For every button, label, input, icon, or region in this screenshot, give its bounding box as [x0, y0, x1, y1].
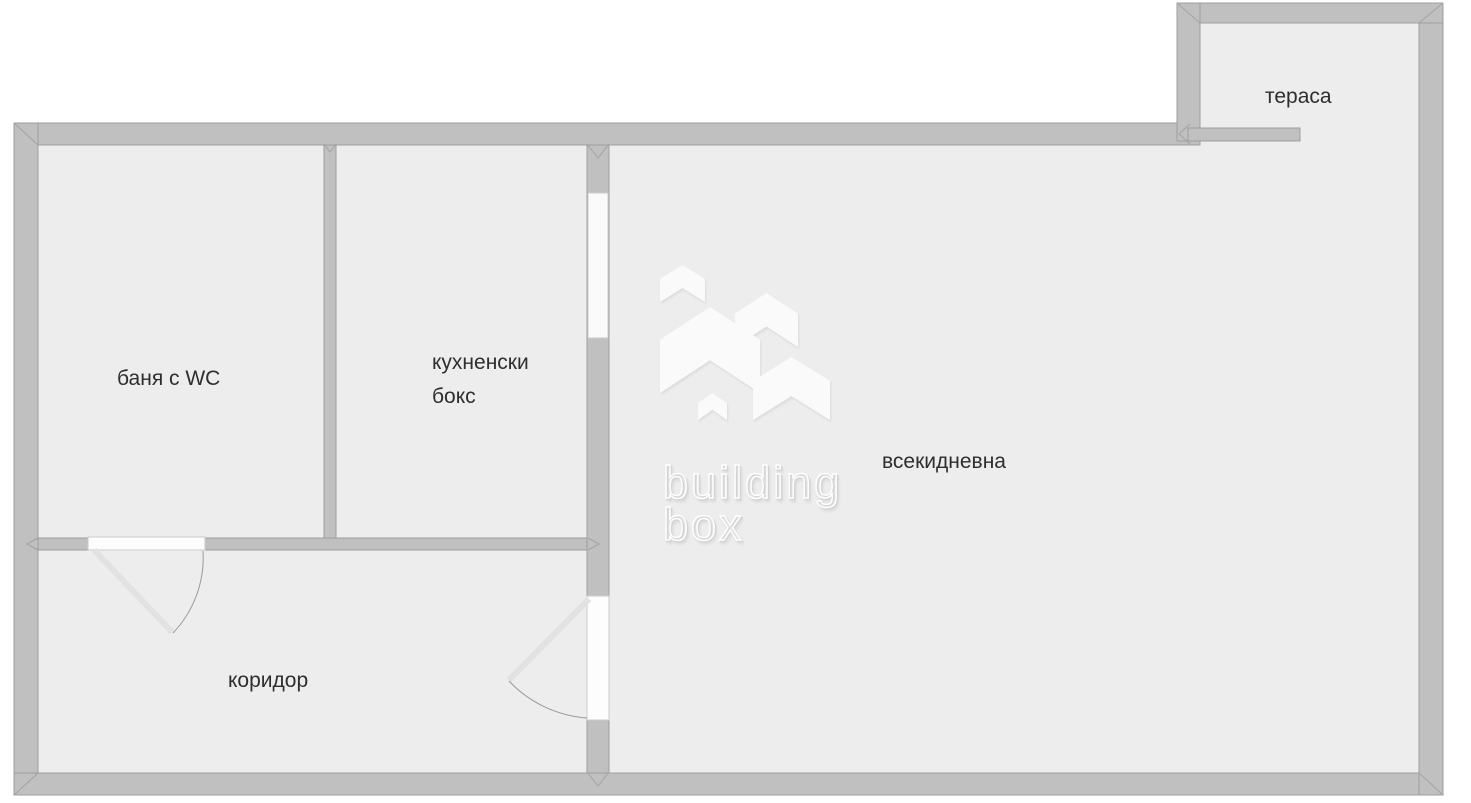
- watermark-brand-line2: box: [663, 499, 745, 550]
- room-label-living-room: всекидневна: [882, 450, 1006, 473]
- wall-left-exterior: [14, 123, 38, 795]
- room-label-bathroom: баня с WC: [117, 367, 220, 390]
- bathroom-door-opening: [88, 537, 205, 550]
- room-label-terrace: тераса: [1265, 85, 1332, 108]
- floorplan-page: building building box box: [0, 0, 1471, 803]
- room-floor-terrace: [1200, 23, 1419, 145]
- kitchen-pass-window: [588, 193, 608, 338]
- living-room-door-opening: [587, 596, 609, 720]
- wall-bathroom-kitchen-divider: [324, 142, 336, 550]
- wall-right-exterior: [1419, 3, 1443, 795]
- wall-terrace-parapet-stub: [1188, 128, 1300, 141]
- room-label-kitchen-line1: кухненски: [432, 351, 529, 374]
- floorplan-canvas: building building box box: [0, 0, 1471, 803]
- wall-terrace-left: [1177, 3, 1200, 141]
- wall-bottom-exterior: [14, 773, 1443, 795]
- wall-top-exterior: [14, 123, 1200, 145]
- wall-terrace-top: [1177, 3, 1443, 23]
- room-label-kitchen-line2: бокс: [432, 385, 476, 408]
- room-label-corridor: коридор: [228, 669, 308, 692]
